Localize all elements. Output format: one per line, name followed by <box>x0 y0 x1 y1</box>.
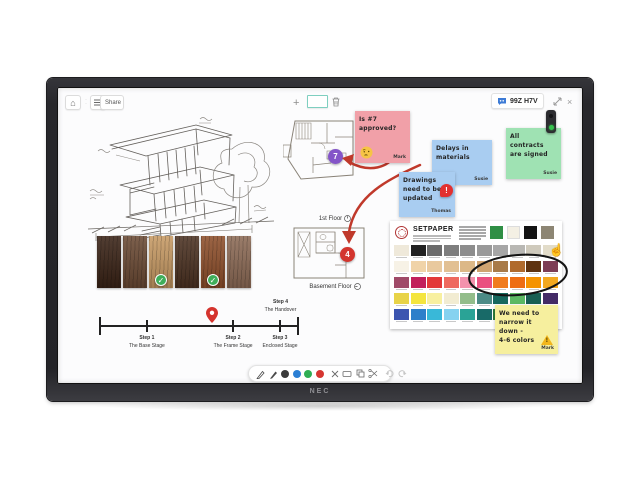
home-icon: ⌂ <box>70 98 75 108</box>
clear-button[interactable] <box>331 370 339 378</box>
color-swatch <box>394 245 409 259</box>
sticky-note-yellow[interactable]: We need to narrow it down - 4-6 colors !… <box>495 305 558 354</box>
session-code-badge[interactable]: 99Z H7V <box>491 93 544 109</box>
eraser-icon <box>342 370 352 378</box>
compass-icon <box>344 215 351 222</box>
marker-number: 7 <box>333 152 337 161</box>
approved-check-icon: ✓ <box>155 274 167 286</box>
timeline-step-label: Step 1The Base Stage <box>124 335 170 350</box>
color-swatch <box>490 226 503 239</box>
collapse-icon <box>553 97 562 106</box>
plan-marker-4[interactable]: 4 <box>340 247 355 262</box>
color-swatch <box>394 293 409 307</box>
monitor-shadow <box>90 401 550 411</box>
color-swatch <box>444 309 459 323</box>
setpaper-code-lines <box>459 226 486 241</box>
setpaper-logo <box>395 226 408 239</box>
timeline-step-label: Step 4The Handover <box>258 299 304 314</box>
color-swatch <box>510 245 525 259</box>
redo-icon <box>398 370 407 378</box>
close-icon: × <box>567 97 572 107</box>
color-swatch <box>477 245 492 259</box>
sticky-note-pink[interactable]: Is #7 approved? Mark <box>355 111 410 163</box>
timeline-tick <box>146 320 148 332</box>
color-swatch <box>427 309 442 323</box>
color-swatch <box>427 293 442 307</box>
thinking-emoji-icon <box>360 146 373 159</box>
note-author: Susie <box>543 171 557 176</box>
color-swatch <box>394 261 409 275</box>
undo-button[interactable] <box>385 370 394 378</box>
first-floor-plan[interactable] <box>283 117 363 191</box>
color-swatch <box>394 309 409 323</box>
color-swatch <box>444 261 459 275</box>
pen-thick-icon <box>269 369 278 379</box>
note-author: Thomas <box>431 209 451 214</box>
compass-icon <box>354 283 361 290</box>
color-swatch <box>543 261 558 275</box>
home-button[interactable]: ⌂ <box>65 95 81 110</box>
note-text: Is #7 approved? <box>359 115 406 133</box>
pen-color-dot[interactable] <box>304 370 312 378</box>
trash-icon <box>332 97 340 107</box>
color-swatch <box>394 277 409 291</box>
eraser-button[interactable] <box>342 370 352 378</box>
color-swatch <box>477 261 492 275</box>
color-swatch <box>507 226 520 239</box>
color-swatch <box>477 293 492 307</box>
color-swatch <box>444 245 459 259</box>
pen-thin-icon <box>256 369 265 379</box>
pen-thick-button[interactable] <box>269 369 278 379</box>
color-swatch <box>427 277 442 291</box>
plan-marker-7[interactable]: 7 <box>328 149 343 164</box>
copy-button[interactable] <box>356 369 365 378</box>
note-author: Mark <box>541 346 554 351</box>
color-swatch <box>493 261 508 275</box>
timeline[interactable]: Step 1The Base StageStep 2The Frame Stag… <box>100 301 298 349</box>
note-text: Delays in materials <box>436 144 488 162</box>
color-swatch <box>460 261 475 275</box>
wood-swatch[interactable] <box>123 236 147 288</box>
color-swatch <box>460 309 475 323</box>
chat-bubble-icon <box>497 97 507 106</box>
color-swatch <box>411 293 426 307</box>
timeline-line <box>100 325 298 327</box>
color-swatch <box>510 277 525 291</box>
pen-color-dot[interactable] <box>293 370 301 378</box>
color-swatch <box>411 245 426 259</box>
session-code: 99Z H7V <box>510 98 538 105</box>
wood-swatch[interactable] <box>175 236 199 288</box>
color-swatch <box>460 245 475 259</box>
timeline-tick <box>279 320 281 332</box>
page-thumbnail[interactable] <box>307 95 328 108</box>
approved-check-icon: ✓ <box>207 274 219 286</box>
clear-x-icon <box>331 370 339 378</box>
timeline-endcap <box>297 317 299 335</box>
color-swatch <box>411 277 426 291</box>
timeline-tick <box>232 320 234 332</box>
wood-swatch[interactable]: ✓ <box>201 236 225 288</box>
architecture-sketch[interactable] <box>82 105 282 255</box>
color-swatch <box>524 226 537 239</box>
drawing-toolbar <box>248 365 392 382</box>
alert-icon: ! <box>440 184 453 197</box>
pen-thin-button[interactable] <box>256 369 265 379</box>
copy-icon <box>356 369 365 378</box>
color-swatch <box>543 277 558 291</box>
pen-color-dot[interactable] <box>316 370 324 378</box>
timeline-step-label: Step 3Enclosed Stage <box>257 335 303 350</box>
close-button[interactable]: × <box>567 97 572 107</box>
add-page-button[interactable]: + <box>293 97 299 109</box>
scissors-icon <box>368 369 378 378</box>
color-swatch <box>444 277 459 291</box>
marker-number: 4 <box>345 250 349 259</box>
whiteboard-screen: ⌂ ·· Share + 99Z H7V × <box>57 87 583 384</box>
wood-swatches: ✓✓ <box>97 236 251 288</box>
first-floor-label: 1st Floor <box>295 215 375 222</box>
wood-swatch[interactable] <box>97 236 121 288</box>
color-swatch <box>411 261 426 275</box>
color-swatch <box>477 309 492 323</box>
undo-icon <box>385 370 394 378</box>
wood-swatch[interactable] <box>227 236 251 288</box>
note-author: Mark <box>393 155 406 160</box>
nec-display-bezel: ⌂ ·· Share + 99Z H7V × <box>47 78 593 401</box>
pen-color-dot[interactable] <box>281 370 289 378</box>
status-light-widget <box>546 110 556 133</box>
color-swatch <box>477 277 492 291</box>
color-swatch <box>411 309 426 323</box>
collapse-button[interactable] <box>553 97 562 106</box>
color-swatch <box>493 245 508 259</box>
redo-button[interactable] <box>398 370 407 378</box>
color-swatch <box>460 293 475 307</box>
note-text: All contracts are signed <box>510 132 557 159</box>
timeline-endcap <box>99 317 101 335</box>
color-swatch <box>460 277 475 291</box>
pointing-hand-icon: ☝ <box>549 243 564 257</box>
color-swatch <box>526 277 541 291</box>
color-swatch <box>541 226 554 239</box>
location-pin-icon[interactable] <box>206 307 218 323</box>
color-swatch <box>493 277 508 291</box>
setpaper-title: SETPAPER <box>413 226 453 233</box>
color-swatch <box>444 293 459 307</box>
sticky-note-green[interactable]: All contracts are signed Susie <box>506 128 561 179</box>
color-swatch <box>427 261 442 275</box>
color-swatch <box>510 261 525 275</box>
delete-page-button[interactable] <box>332 97 340 107</box>
pen-colors <box>281 370 324 378</box>
basement-floor-plan[interactable] <box>290 225 370 283</box>
warning-triangle-icon: ! <box>541 335 553 345</box>
nec-logo: NEC <box>47 384 593 401</box>
color-swatch <box>427 245 442 259</box>
timeline-step-label: Step 2The Frame Stage <box>210 335 256 350</box>
setpaper-header-swatches <box>490 226 554 239</box>
plus-icon: + <box>293 97 299 109</box>
color-swatch <box>526 245 541 259</box>
note-author: Susie <box>474 177 488 182</box>
setpaper-address-lines <box>413 235 451 243</box>
wood-swatch[interactable]: ✓ <box>149 236 173 288</box>
color-swatch <box>526 261 541 275</box>
scissors-button[interactable] <box>368 369 378 378</box>
basement-floor-label: Basement Floor <box>295 283 375 290</box>
